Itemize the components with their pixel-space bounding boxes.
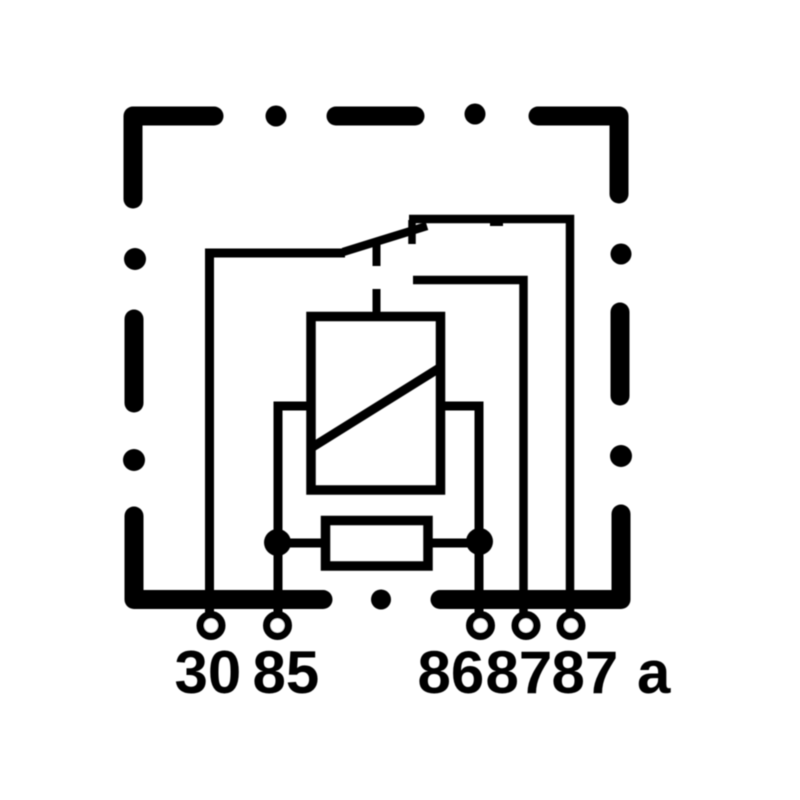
svg-text:85: 85 <box>253 639 320 706</box>
svg-text:86: 86 <box>418 639 485 706</box>
svg-text:87: 87 <box>486 639 553 706</box>
svg-text:87: 87 <box>552 639 619 706</box>
svg-text:a: a <box>637 639 671 706</box>
svg-text:30: 30 <box>175 639 242 706</box>
